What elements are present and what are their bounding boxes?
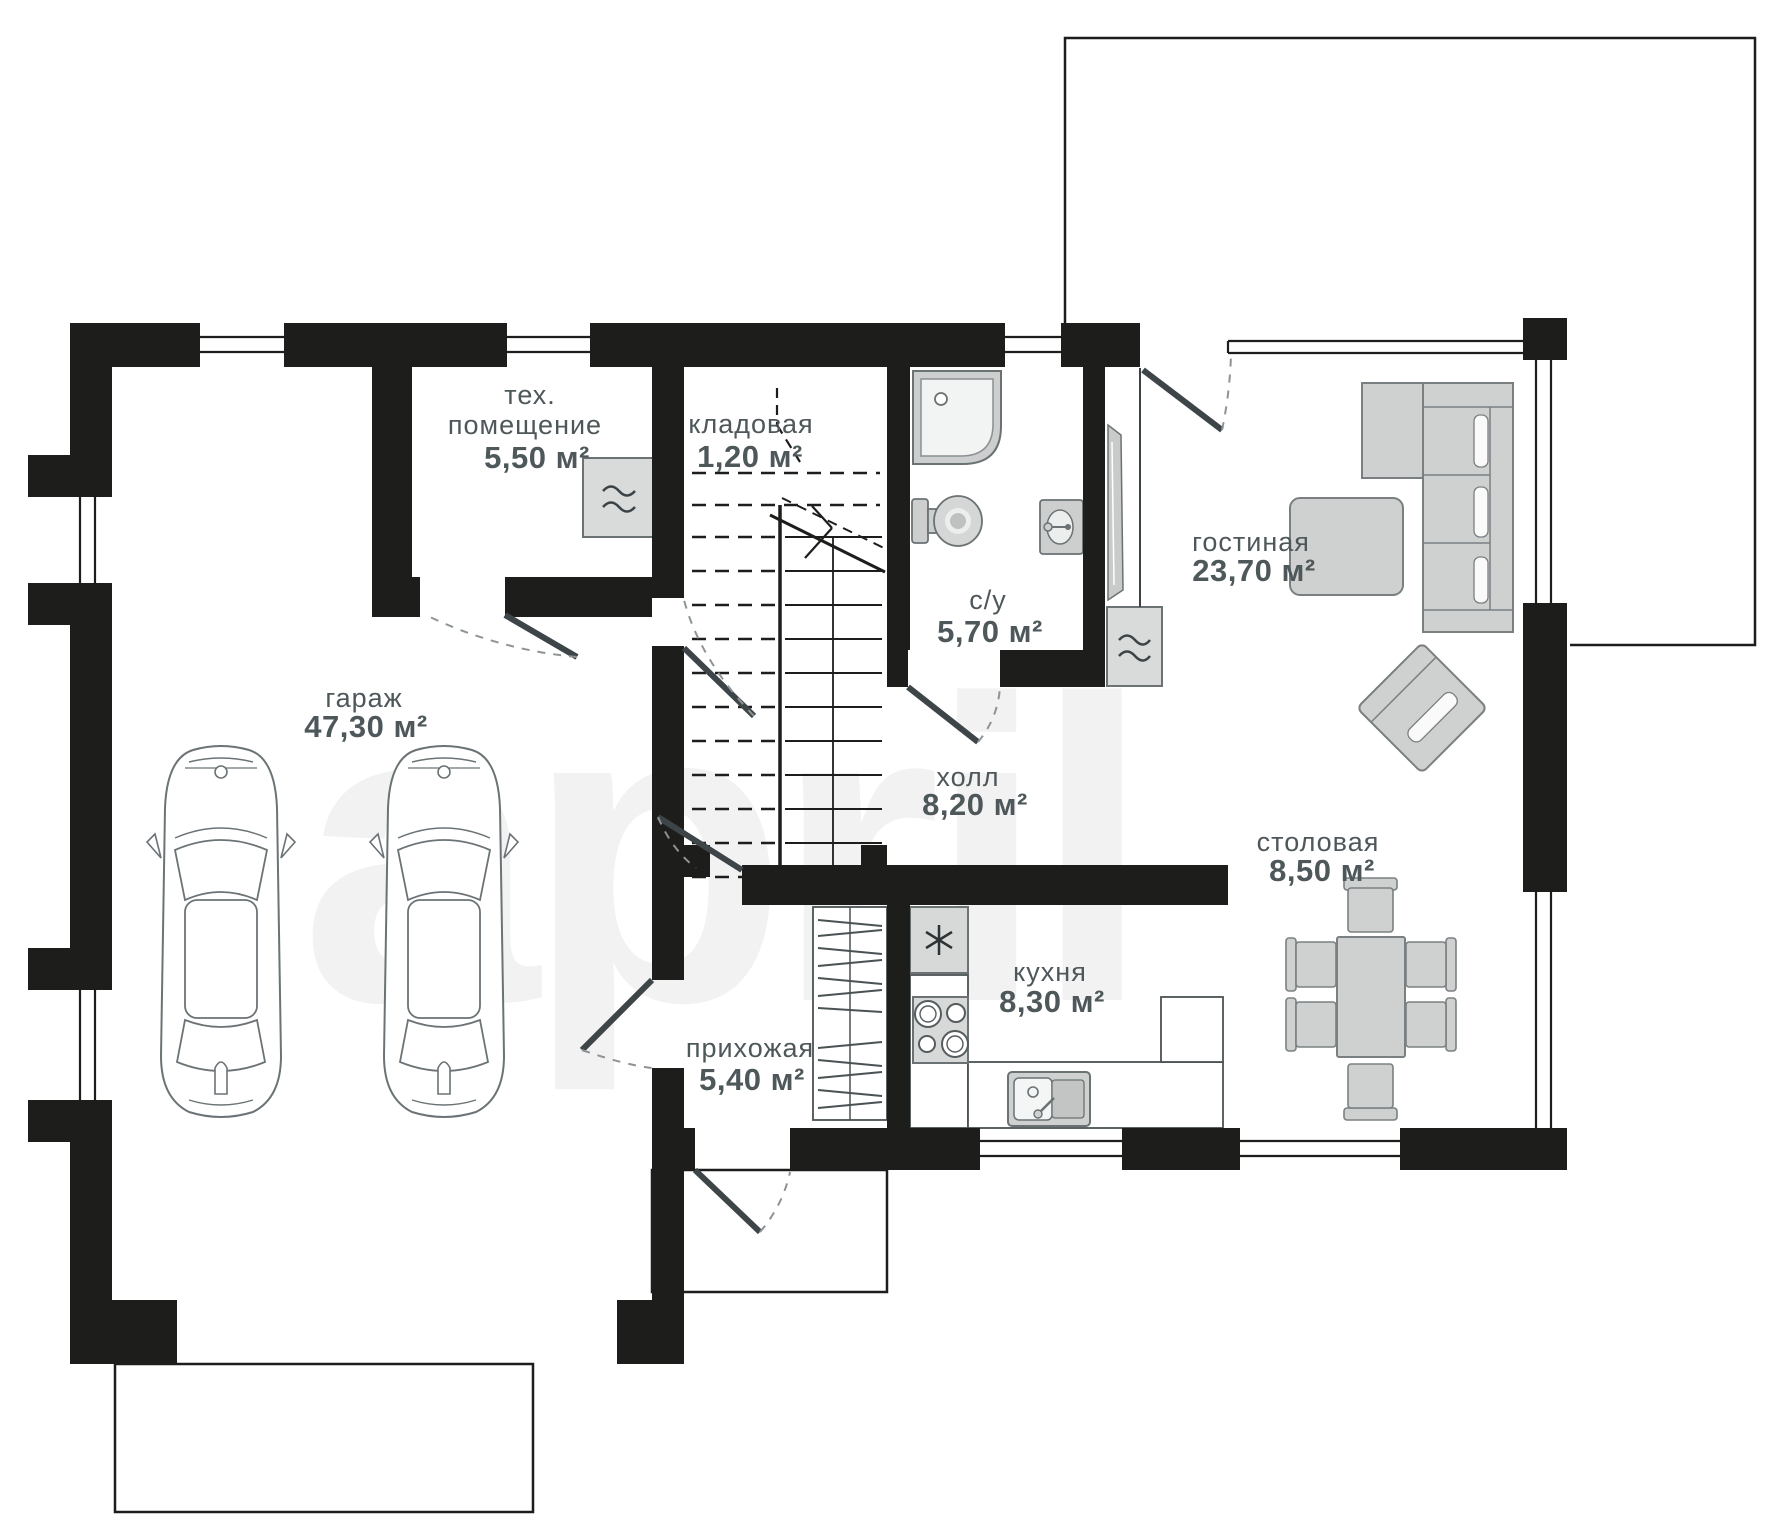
driveway-outline [115, 1364, 533, 1512]
room-area-storage: 1,20 м² [697, 439, 803, 474]
wardrobe-icon [813, 907, 887, 1120]
room-area-entry: 5,40 м² [699, 1062, 805, 1097]
car-right [370, 746, 518, 1117]
room-area-tech: 5,50 м² [484, 440, 590, 475]
boiler-tech-room [583, 458, 655, 537]
toilet-icon [912, 496, 982, 546]
kitchen-sink-icon [1008, 1072, 1090, 1126]
stove-icon [913, 997, 968, 1063]
room-label-tech-1: тех. [504, 380, 556, 410]
porch-outline [652, 1170, 887, 1292]
wash-basin-icon [1040, 500, 1083, 554]
car-left [147, 746, 295, 1117]
room-label-kitchen: кухня [1013, 957, 1087, 987]
room-area-hall: 8,20 м² [922, 787, 1028, 822]
room-area-living: 23,70 м² [1192, 553, 1315, 588]
room-area-dining: 8,50 м² [1269, 853, 1375, 888]
room-area-garage: 47,30 м² [304, 709, 427, 744]
shower-icon [913, 371, 1001, 464]
room-label-entry: прихожая [686, 1033, 814, 1063]
floor-plan: april [0, 0, 1791, 1521]
room-label-bathroom: с/у [969, 585, 1007, 615]
fridge-icon [910, 907, 968, 973]
room-label-tech-2: помещение [448, 410, 602, 440]
floor-plan-svg: april [0, 0, 1791, 1521]
room-label-storage: кладовая [688, 409, 813, 439]
room-area-kitchen: 8,30 м² [999, 984, 1105, 1019]
room-area-bathroom: 5,70 м² [937, 614, 1043, 649]
boiler-vestibule [1107, 607, 1162, 686]
